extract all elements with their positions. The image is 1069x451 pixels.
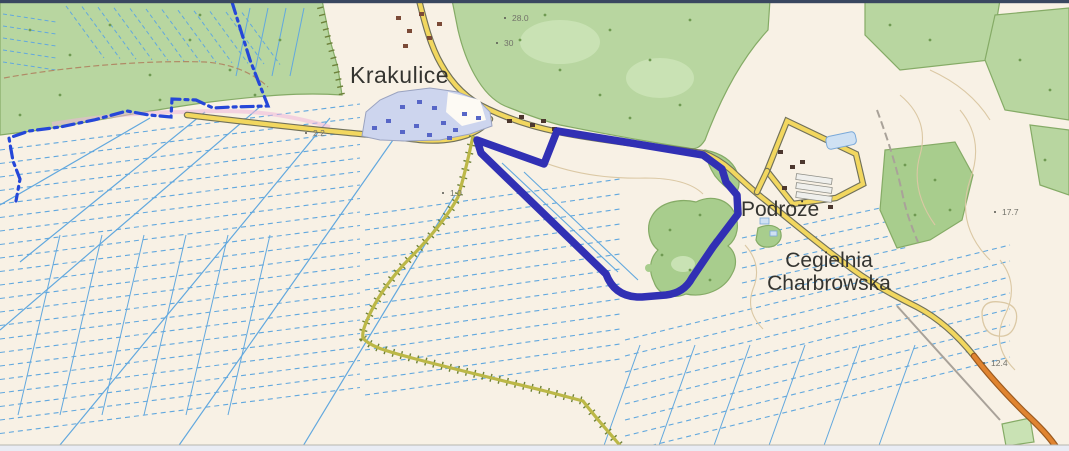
building	[778, 150, 783, 154]
tree-symbol	[229, 69, 232, 72]
tree-symbol	[519, 39, 522, 42]
building	[530, 123, 535, 127]
bottom-divider-line	[0, 445, 1069, 446]
map-svg: Krakulice Podroże Cegielnia Charbrowska …	[0, 0, 1069, 451]
tree-symbol	[59, 94, 62, 97]
building	[782, 186, 787, 190]
spot-height-label: 2.2	[313, 128, 325, 138]
building	[400, 105, 405, 109]
spot-height-dot	[994, 211, 996, 213]
tree-symbol	[689, 269, 692, 272]
building	[476, 116, 481, 120]
place-label-cegielnia-line1: Cegielnia	[785, 249, 873, 272]
building	[800, 160, 805, 164]
building	[453, 128, 458, 132]
place-label-podroze: Podroże	[741, 198, 819, 221]
tree-symbol	[629, 117, 632, 120]
tree-symbol	[889, 24, 892, 27]
tree-symbol	[709, 279, 712, 282]
place-label-cegielnia-line2: Charbrowska	[767, 272, 891, 295]
bottom-status-strip	[0, 446, 1069, 451]
building	[386, 119, 391, 123]
building	[417, 100, 422, 104]
building	[507, 119, 512, 123]
forest-clearing	[626, 58, 694, 98]
small-pond	[770, 231, 777, 236]
tree-symbol	[929, 39, 932, 42]
building	[447, 136, 452, 140]
tree-symbol	[279, 39, 282, 42]
tree-symbol	[609, 29, 612, 32]
building	[403, 44, 408, 48]
spot-height-dot	[496, 42, 498, 44]
building	[437, 22, 442, 26]
spot-height-dot	[305, 132, 307, 134]
building	[396, 16, 401, 20]
tree-symbol	[679, 104, 682, 107]
tree-symbol	[689, 19, 692, 22]
building	[828, 205, 833, 209]
top-window-bar	[0, 0, 1069, 3]
tree-symbol	[949, 209, 952, 212]
spot-height-label: 12.4	[991, 358, 1008, 368]
spot-height-label: 17.7	[1002, 207, 1019, 217]
building	[790, 165, 795, 169]
place-label-krakulice: Krakulice	[350, 62, 449, 88]
building	[519, 115, 524, 119]
tree-symbol	[254, 94, 257, 97]
spot-height-dot	[442, 192, 444, 194]
tree-symbol	[914, 214, 917, 217]
spot-height-label: 1.0	[450, 188, 462, 198]
tree-symbol	[649, 59, 652, 62]
spot-height-label: 28.0	[512, 13, 529, 23]
tree-symbol	[699, 214, 702, 217]
spot-height-dot	[504, 17, 506, 19]
tree-symbol	[1049, 89, 1052, 92]
forest-clearing	[671, 256, 695, 272]
tree-symbol	[661, 254, 664, 257]
building	[414, 124, 419, 128]
tree-symbol	[934, 179, 937, 182]
spot-height-dot	[983, 362, 985, 364]
building	[462, 112, 467, 116]
tree-symbol	[69, 54, 72, 57]
tree-symbol	[149, 74, 152, 77]
building	[432, 106, 437, 110]
forest-clearing	[520, 20, 600, 64]
spot-height-label: 30	[504, 38, 514, 48]
building	[419, 12, 424, 16]
tree-symbol	[599, 94, 602, 97]
tree-symbol	[199, 14, 202, 17]
building	[427, 133, 432, 137]
tree-symbol	[544, 14, 547, 17]
tree-symbol	[109, 24, 112, 27]
building	[400, 130, 405, 134]
tree-symbol	[159, 99, 162, 102]
tree-symbol	[19, 114, 22, 117]
tree-symbol	[1019, 59, 1022, 62]
forest-area	[645, 264, 653, 272]
tree-symbol	[559, 69, 562, 72]
building	[407, 29, 412, 33]
tree-symbol	[904, 164, 907, 167]
building	[541, 119, 546, 123]
tree-symbol	[189, 39, 192, 42]
tree-symbol	[1044, 159, 1047, 162]
building	[372, 126, 377, 130]
map-canvas[interactable]: Krakulice Podroże Cegielnia Charbrowska …	[0, 0, 1069, 451]
building	[427, 36, 432, 40]
tree-symbol	[669, 229, 672, 232]
tree-symbol	[29, 29, 32, 32]
building	[441, 121, 446, 125]
